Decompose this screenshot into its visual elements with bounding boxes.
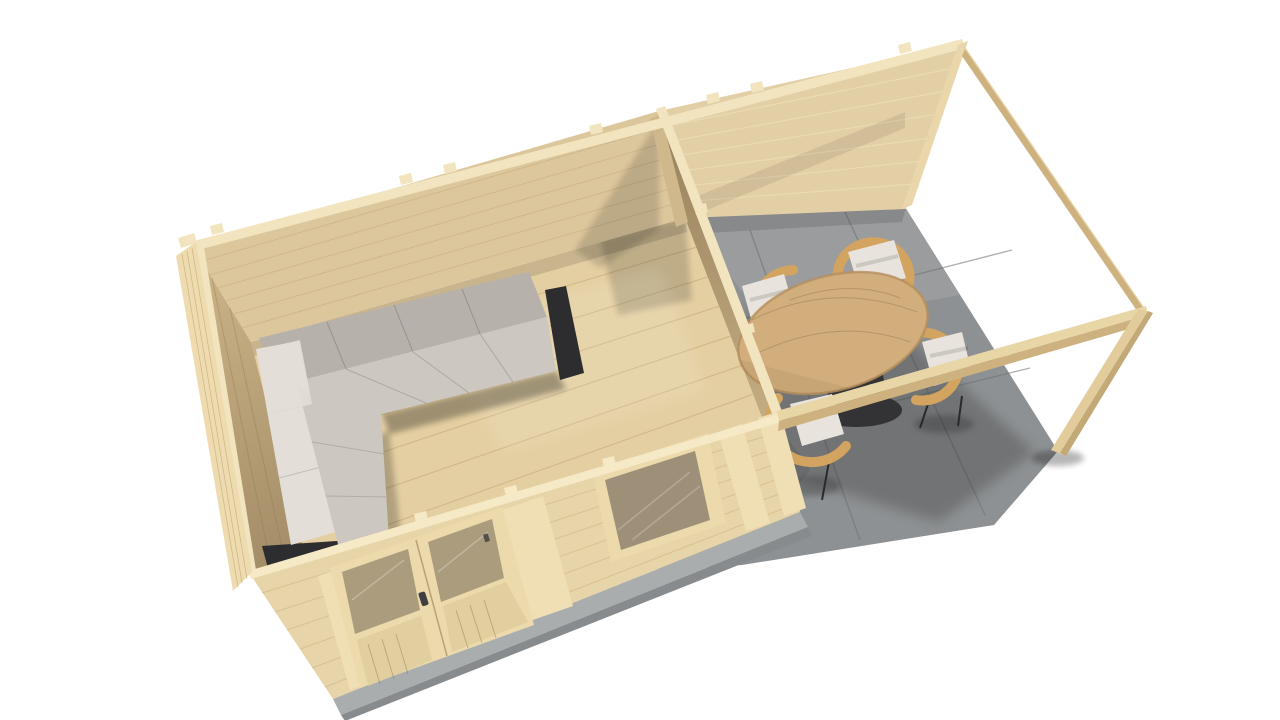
cabin-render: Elevated isometric 3D render of a wooden… xyxy=(0,0,1280,720)
render-canvas: Elevated isometric 3D render of a wooden… xyxy=(0,0,1280,720)
